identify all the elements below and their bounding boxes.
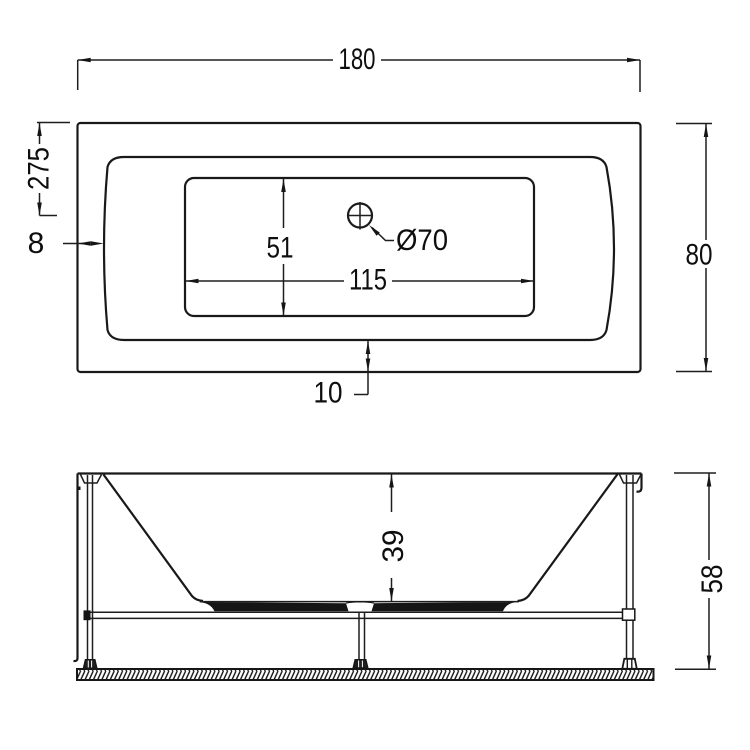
svg-text:275: 275 xyxy=(23,147,56,190)
svg-text:80: 80 xyxy=(686,239,713,272)
svg-text:58: 58 xyxy=(696,565,729,594)
svg-text:115: 115 xyxy=(349,264,387,297)
svg-text:180: 180 xyxy=(339,43,376,76)
svg-text:51: 51 xyxy=(267,232,294,265)
svg-text:8: 8 xyxy=(28,227,45,260)
svg-text:Ø70: Ø70 xyxy=(396,224,448,257)
svg-text:10: 10 xyxy=(314,377,343,410)
svg-text:39: 39 xyxy=(377,530,410,563)
